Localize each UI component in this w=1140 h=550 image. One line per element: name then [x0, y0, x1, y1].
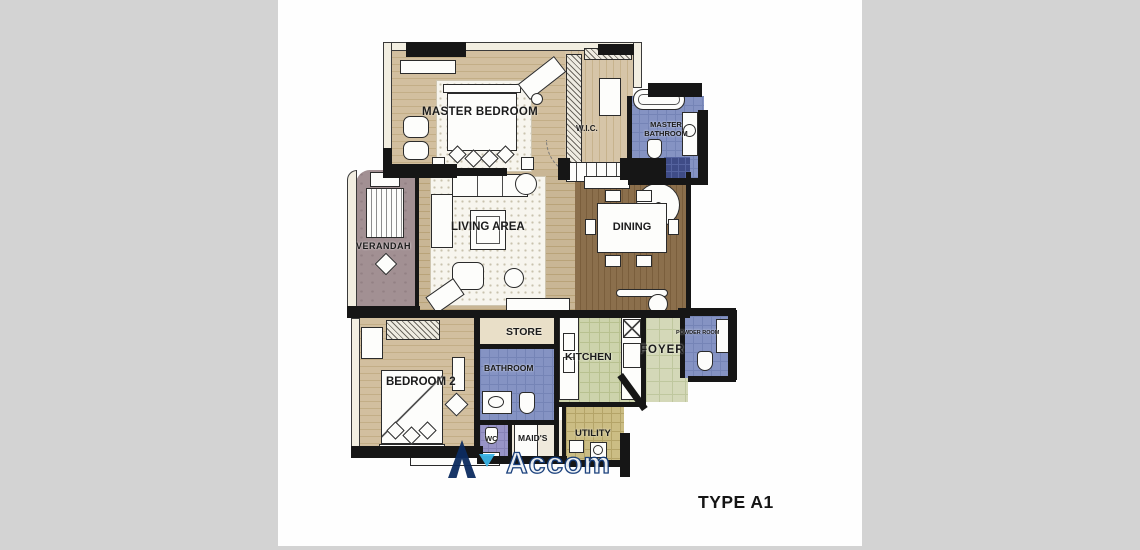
chaise	[431, 194, 453, 248]
room-label-dining: DINING	[613, 221, 652, 234]
wall-segment	[698, 110, 708, 184]
wall-segment	[415, 170, 419, 310]
wall-segment	[477, 344, 555, 349]
wall-segment	[474, 316, 480, 448]
dining-chair	[636, 255, 652, 267]
fridge	[623, 319, 641, 338]
wall-segment	[628, 178, 708, 185]
side-table	[504, 268, 524, 288]
floorplan-image: DINING	[0, 0, 1140, 550]
room-label-foyer: FOYER	[640, 344, 685, 358]
wall-segment	[406, 42, 466, 57]
sink	[488, 396, 504, 408]
dresser	[361, 327, 383, 359]
room-label-bathroom: BATHROOM	[484, 363, 533, 373]
ottoman	[403, 141, 429, 160]
room-label-store: STORE	[506, 326, 542, 339]
dresser	[599, 78, 621, 116]
wall-segment	[598, 44, 634, 55]
wall-segment	[620, 433, 630, 477]
appliance	[623, 343, 641, 368]
wall-segment	[558, 158, 570, 180]
wall-segment	[554, 310, 559, 458]
kitchen-sink	[563, 333, 575, 351]
wall-segment	[556, 402, 646, 407]
dining-table: DINING	[597, 203, 667, 253]
room-label-bedroom-2: BEDROOM 2	[386, 376, 456, 390]
toilet	[647, 139, 662, 159]
wall-segment	[728, 310, 737, 380]
toilet	[697, 351, 713, 371]
wardrobe	[566, 54, 582, 164]
accom-logo-icon	[448, 440, 500, 478]
bed-headboard	[443, 84, 521, 93]
room-label-wic: W.I.C.	[576, 124, 598, 134]
wall-segment	[477, 420, 557, 425]
desk-stool	[531, 93, 543, 105]
bench	[400, 60, 456, 74]
wall-segment	[686, 172, 691, 312]
round-chair	[515, 173, 537, 195]
room-label-master-bathroom: MASTER BATHROOM	[633, 120, 699, 138]
wardrobe	[386, 320, 440, 340]
room-label-powder-room: POWDER ROOM	[676, 330, 719, 337]
dining-chair	[668, 219, 679, 235]
watermark-text: Accom	[506, 450, 611, 479]
wall-segment	[641, 314, 646, 404]
room-label-living-area: LIVING AREA	[451, 221, 525, 235]
wall-segment	[455, 168, 507, 176]
outer-wall	[351, 318, 360, 448]
plan-type-label: TYPE A1	[698, 492, 774, 513]
wall-segment	[688, 376, 736, 382]
nightstand	[521, 157, 534, 170]
room-label-kitchen: KITCHEN	[565, 351, 612, 364]
watermark: Accom	[448, 438, 611, 478]
room-label-verandah: VERANDAH	[356, 241, 411, 252]
master-bed	[447, 93, 517, 151]
dining-chair	[605, 255, 621, 267]
wall-segment	[620, 158, 666, 180]
toilet	[519, 392, 535, 414]
outer-wall	[633, 42, 642, 88]
dining-chair	[585, 219, 596, 235]
dining-chair	[636, 190, 652, 202]
verandah-chair	[366, 188, 404, 238]
wall-segment	[356, 310, 690, 318]
wall-segment	[648, 83, 702, 97]
wall-segment	[627, 96, 632, 160]
wall-segment	[383, 164, 457, 178]
room-label-master-bedroom: MASTER BEDROOM	[422, 106, 538, 120]
dining-chair	[605, 190, 621, 202]
